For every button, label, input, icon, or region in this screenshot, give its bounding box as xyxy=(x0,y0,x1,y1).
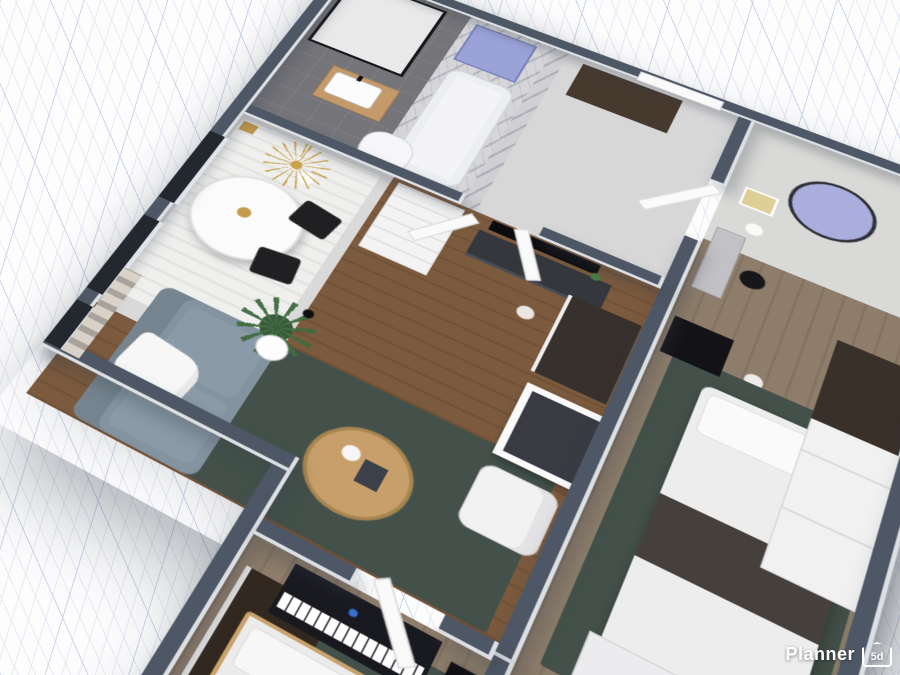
planner5d-house-badge-icon: 5d xyxy=(862,642,892,667)
planner5d-watermark: Planner 5d xyxy=(785,642,892,667)
floorplan-3d-viewport[interactable]: Planner 5d xyxy=(0,0,900,675)
watermark-brand-text: Planner xyxy=(785,644,855,665)
